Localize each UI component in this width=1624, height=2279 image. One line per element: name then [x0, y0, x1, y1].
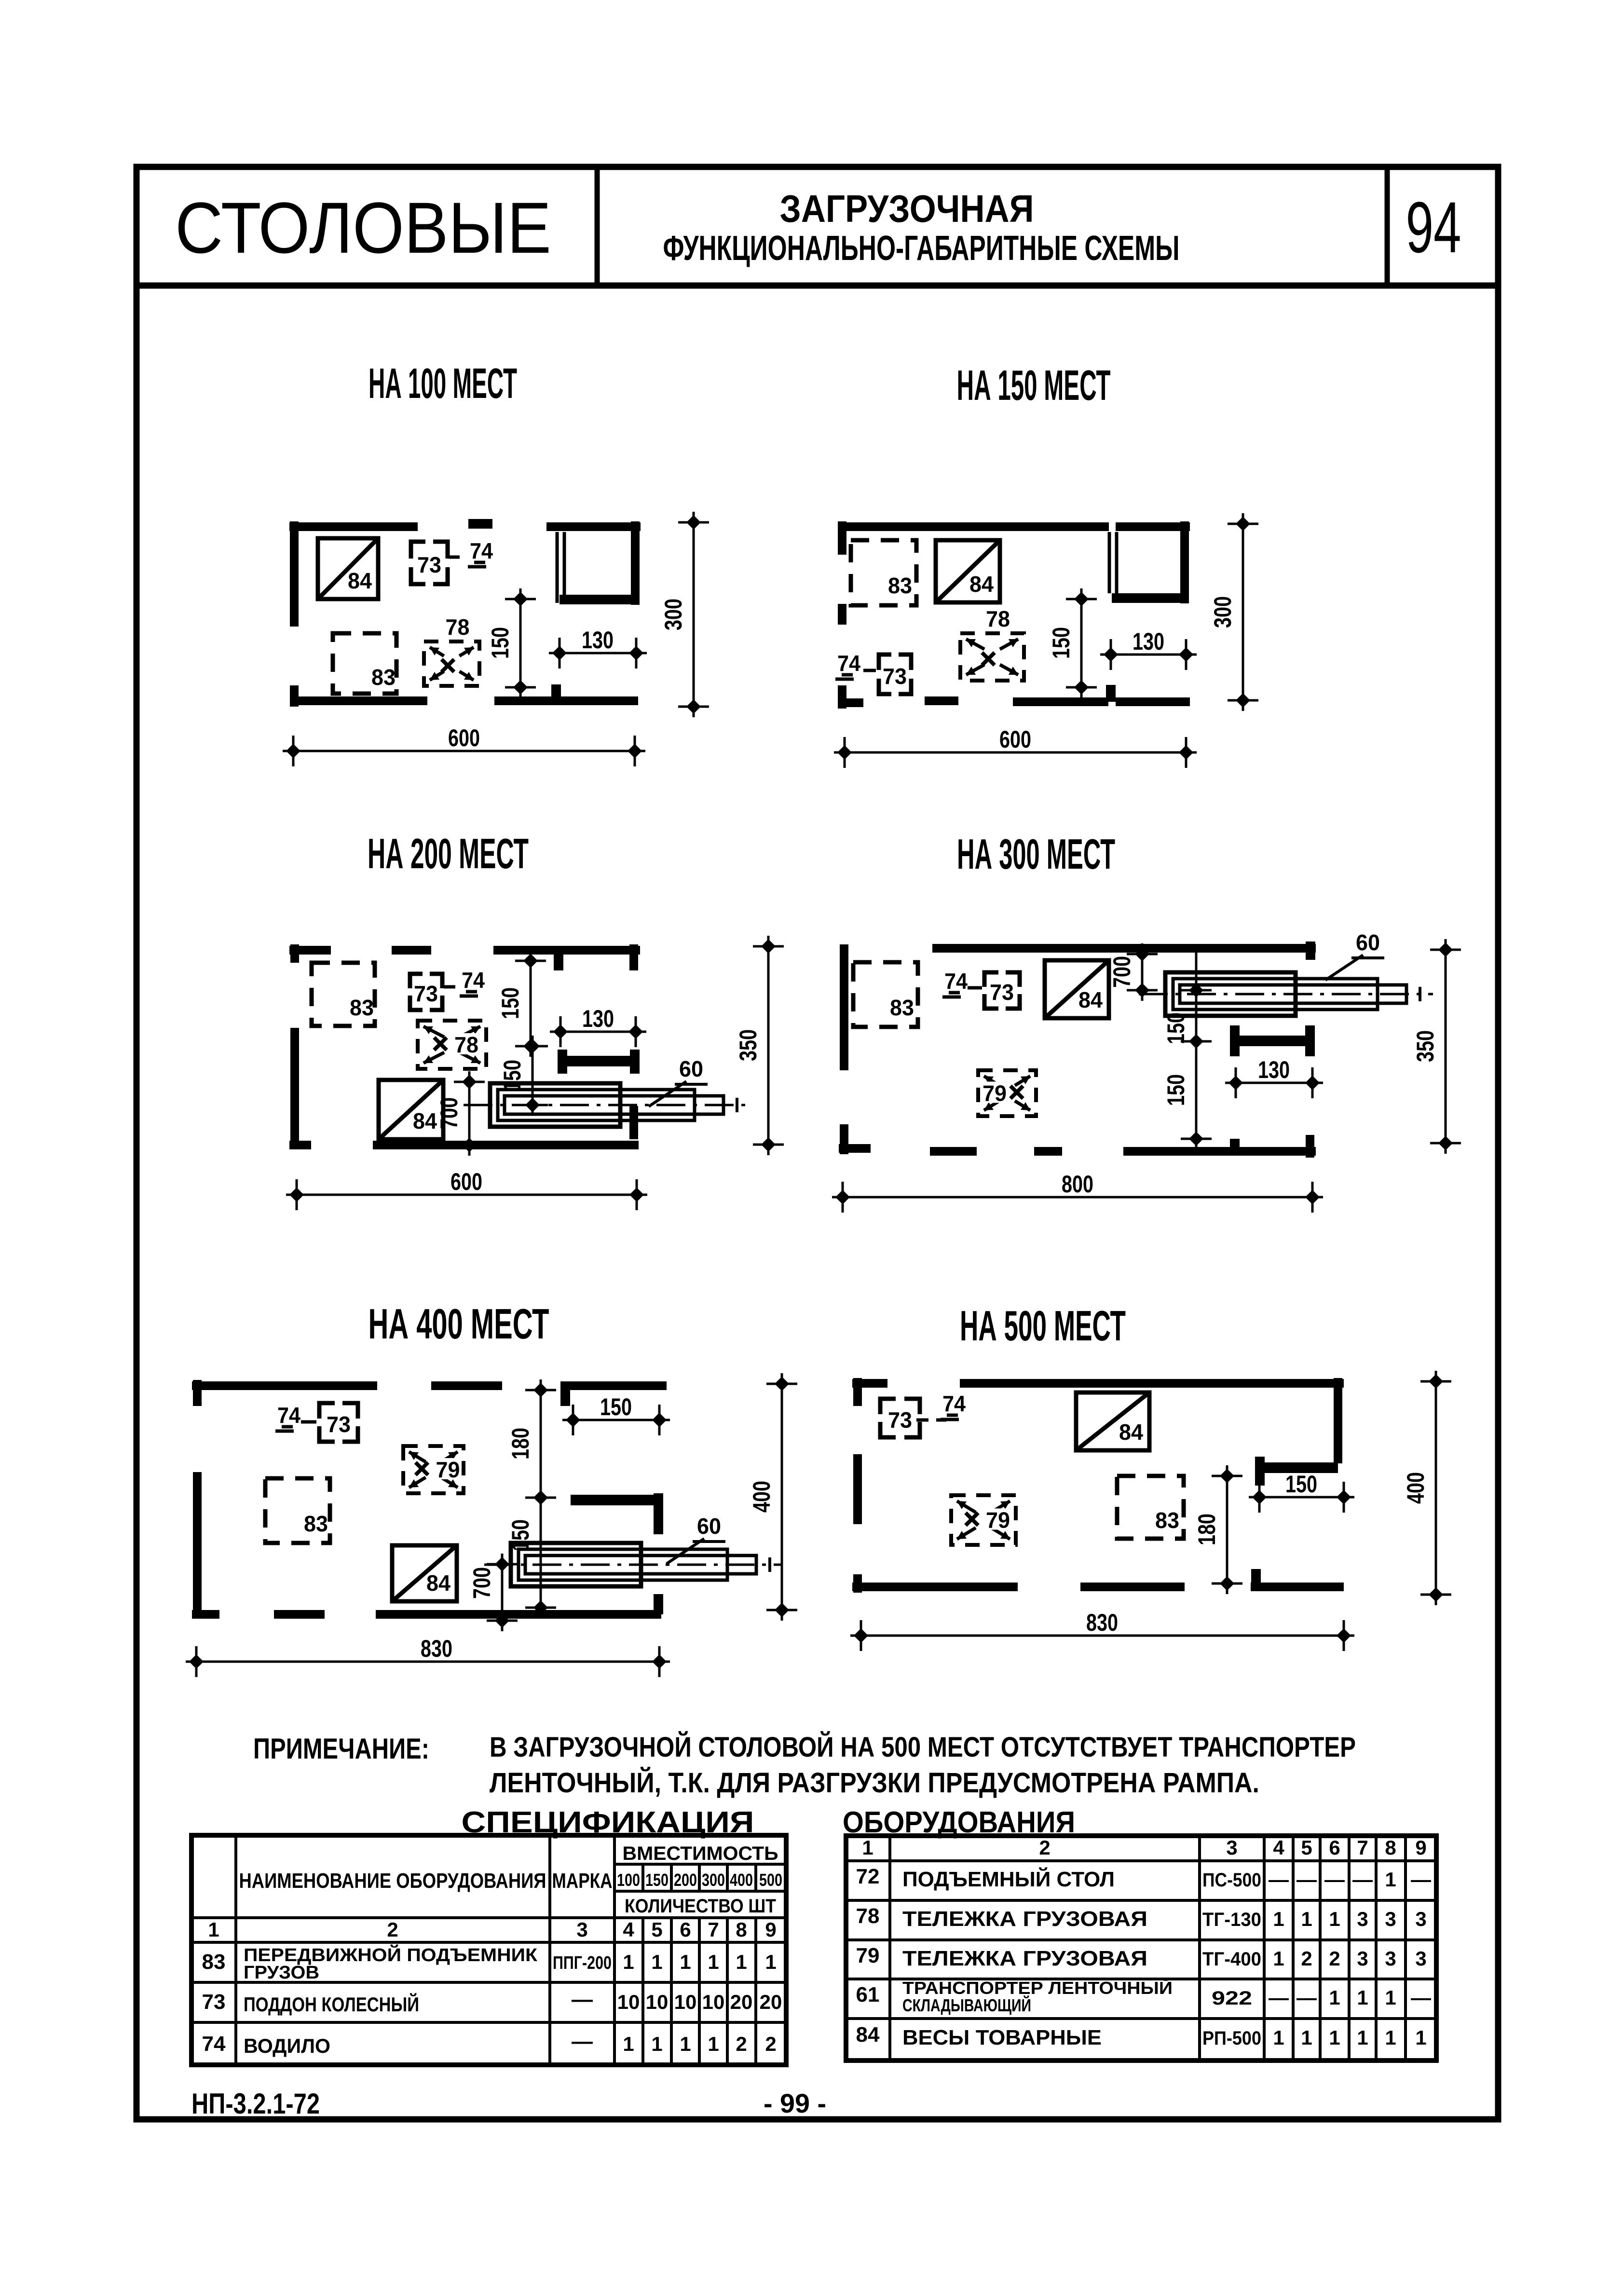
- svg-text:3: 3: [1357, 1908, 1368, 1930]
- svg-text:1: 1: [651, 1951, 662, 1973]
- svg-text:400: 400: [748, 1481, 775, 1513]
- svg-text:1: 1: [708, 1951, 719, 1973]
- svg-text:НАИМЕНОВАНИЕ ОБОРУДОВАНИЯ: НАИМЕНОВАНИЕ ОБОРУДОВАНИЯ: [239, 1869, 546, 1893]
- svg-text:78: 78: [986, 606, 1010, 631]
- svg-text:61: 61: [856, 1983, 880, 2006]
- svg-text:130: 130: [582, 627, 614, 654]
- svg-text:300: 300: [660, 599, 687, 630]
- svg-text:400: 400: [730, 1870, 753, 1890]
- svg-text:ТГ-130: ТГ-130: [1202, 1909, 1261, 1930]
- svg-text:73: 73: [202, 1990, 226, 2014]
- svg-text:1: 1: [1415, 2026, 1426, 2049]
- svg-text:350: 350: [1412, 1030, 1439, 1062]
- svg-text:1: 1: [736, 1951, 747, 1973]
- svg-text:1: 1: [765, 1951, 776, 1973]
- svg-text:84: 84: [1078, 987, 1103, 1012]
- svg-text:ТРАНСПОРТЕР ЛЕНТОЧНЫЙ: ТРАНСПОРТЕР ЛЕНТОЧНЫЙ: [902, 1978, 1173, 1998]
- svg-text:700: 700: [468, 1567, 495, 1599]
- svg-text:1: 1: [1273, 1947, 1284, 1970]
- svg-text:ЗАГРУЗОЧНАЯ: ЗАГРУЗОЧНАЯ: [780, 187, 1034, 230]
- svg-text:130: 130: [1133, 628, 1164, 655]
- svg-text:5: 5: [1301, 1836, 1312, 1859]
- svg-text:73: 73: [414, 981, 438, 1006]
- svg-text:200: 200: [674, 1870, 697, 1890]
- svg-text:83: 83: [890, 995, 914, 1020]
- svg-text:78: 78: [856, 1904, 880, 1928]
- svg-text:1: 1: [1273, 2026, 1284, 2049]
- svg-text:—: —: [1324, 1868, 1345, 1891]
- svg-text:ЛЕНТОЧНЫЙ, Т.К. ДЛЯ РАЗГРУЗК: ЛЕНТОЧНЫЙ, Т.К. ДЛЯ РАЗГРУЗКИ ПРЕДУСМОТР…: [490, 1767, 1259, 1799]
- svg-text:83: 83: [202, 1950, 226, 1974]
- svg-text:83: 83: [888, 573, 912, 598]
- svg-text:2: 2: [1329, 1947, 1340, 1970]
- svg-text:10: 10: [617, 1991, 640, 2013]
- svg-text:1: 1: [1329, 1908, 1340, 1930]
- svg-text:МАРКА: МАРКА: [552, 1869, 613, 1893]
- svg-text:В ЗАГРУЗОЧНОЙ СТОЛОВОЙ НА: В ЗАГРУЗОЧНОЙ СТОЛОВОЙ НА 500 МЕСТ ОТСУТ…: [490, 1732, 1356, 1763]
- svg-text:300: 300: [1209, 596, 1236, 628]
- svg-text:1: 1: [680, 1951, 691, 1973]
- svg-text:ППГ-200: ППГ-200: [553, 1953, 612, 1973]
- svg-text:НА 400 МЕСТ: НА 400 МЕСТ: [368, 1300, 549, 1348]
- svg-text:150: 150: [1285, 1471, 1317, 1498]
- svg-text:—: —: [1269, 1868, 1289, 1891]
- svg-text:—: —: [1411, 1868, 1431, 1891]
- svg-text:150: 150: [507, 1519, 534, 1551]
- svg-text:73: 73: [417, 552, 441, 577]
- svg-text:74: 74: [942, 1391, 966, 1416]
- svg-text:9: 9: [1415, 1836, 1426, 1859]
- svg-text:130: 130: [1258, 1056, 1290, 1083]
- svg-text:74: 74: [277, 1403, 300, 1428]
- svg-text:20: 20: [730, 1991, 753, 2013]
- svg-text:600: 600: [999, 726, 1031, 753]
- svg-text:100: 100: [617, 1870, 640, 1890]
- svg-text:84: 84: [413, 1108, 437, 1133]
- svg-text:1: 1: [1301, 2026, 1312, 2049]
- svg-text:6: 6: [680, 1918, 691, 1941]
- svg-text:73: 73: [883, 664, 907, 689]
- svg-text:150: 150: [487, 627, 514, 659]
- svg-text:3: 3: [576, 1918, 587, 1941]
- svg-text:ВЕСЫ ТОВАРНЫЕ: ВЕСЫ ТОВАРНЫЕ: [902, 2026, 1102, 2049]
- svg-text:350: 350: [735, 1029, 762, 1061]
- svg-text:3: 3: [1385, 1908, 1396, 1930]
- svg-text:3: 3: [1226, 1836, 1237, 1859]
- svg-text:1: 1: [208, 1918, 219, 1941]
- svg-text:2: 2: [765, 2033, 776, 2055]
- svg-text:83: 83: [350, 995, 374, 1020]
- svg-text:10: 10: [646, 1991, 669, 2013]
- svg-text:- 99 -: - 99 -: [764, 2088, 826, 2118]
- svg-text:79: 79: [436, 1457, 460, 1482]
- svg-text:—: —: [572, 1988, 593, 2011]
- svg-text:1: 1: [1273, 1908, 1284, 1930]
- svg-text:ПОДДОН КОЛЕСНЫЙ: ПОДДОН КОЛЕСНЫЙ: [244, 1992, 419, 2016]
- svg-text:СКЛАДЫВАЮЩИЙ: СКЛАДЫВАЮЩИЙ: [902, 1995, 1031, 2015]
- svg-text:НА 500 МЕСТ: НА 500 МЕСТ: [960, 1302, 1126, 1350]
- svg-text:1: 1: [1329, 2026, 1340, 2049]
- svg-text:74: 74: [470, 538, 493, 563]
- svg-text:ТЕЛЕЖКА ГРУЗОВАЯ: ТЕЛЕЖКА ГРУЗОВАЯ: [902, 1907, 1147, 1931]
- svg-text:СТОЛОВЫЕ: СТОЛОВЫЕ: [175, 187, 551, 268]
- svg-text:2: 2: [1039, 1836, 1050, 1859]
- svg-text:НА 100 МЕСТ: НА 100 МЕСТ: [368, 359, 517, 407]
- svg-text:10: 10: [702, 1991, 725, 2013]
- svg-text:—: —: [1411, 1986, 1431, 2009]
- svg-text:83: 83: [304, 1511, 328, 1536]
- svg-text:НА 150 МЕСТ: НА 150 МЕСТ: [957, 361, 1111, 409]
- svg-text:73: 73: [888, 1407, 912, 1433]
- svg-text:60: 60: [1356, 930, 1380, 955]
- svg-text:150: 150: [1162, 1074, 1189, 1106]
- svg-text:9: 9: [765, 1918, 776, 1941]
- svg-text:1: 1: [623, 2033, 634, 2055]
- svg-text:ВМЕСТИМОСТЬ: ВМЕСТИМОСТЬ: [623, 1843, 778, 1864]
- svg-text:79: 79: [856, 1944, 880, 1967]
- svg-text:—: —: [1269, 1986, 1289, 2009]
- svg-text:НА 200 МЕСТ: НА 200 МЕСТ: [368, 830, 529, 877]
- svg-text:72: 72: [856, 1865, 880, 1888]
- svg-text:500: 500: [759, 1870, 782, 1890]
- svg-text:РП-500: РП-500: [1202, 2028, 1261, 2049]
- svg-text:1: 1: [862, 1836, 873, 1859]
- svg-text:8: 8: [1385, 1836, 1396, 1859]
- svg-text:4: 4: [1273, 1836, 1284, 1859]
- svg-text:830: 830: [421, 1635, 452, 1662]
- svg-text:79: 79: [983, 1081, 1007, 1106]
- svg-text:—: —: [1352, 1868, 1373, 1891]
- svg-text:2: 2: [1301, 1947, 1312, 1970]
- svg-text:1: 1: [708, 2033, 719, 2055]
- svg-text:150: 150: [600, 1393, 632, 1420]
- svg-text:2: 2: [387, 1918, 398, 1941]
- svg-text:150: 150: [645, 1870, 669, 1890]
- svg-text:1: 1: [680, 2033, 691, 2055]
- svg-text:800: 800: [1062, 1171, 1093, 1198]
- svg-text:150: 150: [1162, 1012, 1189, 1044]
- svg-text:130: 130: [582, 1005, 614, 1032]
- svg-text:7: 7: [708, 1918, 719, 1941]
- svg-text:150: 150: [499, 1060, 526, 1092]
- svg-text:НП-3.2.1-72: НП-3.2.1-72: [191, 2088, 320, 2120]
- svg-text:ФУНКЦИОНАЛЬНО-ГАБАРИТНЫЕ СХЕМЫ: ФУНКЦИОНАЛЬНО-ГАБАРИТНЫЕ СХЕМЫ: [663, 229, 1180, 268]
- svg-text:74: 74: [944, 969, 968, 994]
- svg-text:1: 1: [623, 1951, 634, 1973]
- svg-text:1: 1: [1385, 1868, 1396, 1891]
- svg-text:ПОДЪЕМНЫЙ СТОЛ: ПОДЪЕМНЫЙ СТОЛ: [902, 1867, 1115, 1891]
- svg-text:84: 84: [426, 1570, 450, 1596]
- svg-text:79: 79: [986, 1508, 1010, 1533]
- svg-text:1: 1: [1385, 2026, 1396, 2049]
- svg-text:84: 84: [856, 2023, 880, 2047]
- svg-text:84: 84: [1119, 1419, 1143, 1445]
- svg-text:1: 1: [1301, 1908, 1312, 1930]
- svg-text:3: 3: [1357, 1947, 1368, 1970]
- svg-text:83: 83: [371, 665, 396, 690]
- svg-text:8: 8: [736, 1918, 747, 1941]
- svg-text:922: 922: [1212, 1988, 1252, 2009]
- svg-text:73: 73: [990, 980, 1014, 1005]
- svg-text:84: 84: [969, 572, 994, 597]
- svg-text:94: 94: [1406, 187, 1461, 268]
- svg-text:—: —: [572, 2030, 593, 2053]
- svg-text:НА 300 МЕСТ: НА 300 МЕСТ: [957, 830, 1115, 878]
- svg-text:400: 400: [1402, 1472, 1429, 1504]
- svg-text:78: 78: [446, 614, 470, 640]
- svg-text:1: 1: [1357, 2026, 1368, 2049]
- svg-text:78: 78: [454, 1032, 478, 1057]
- svg-text:ПРИМЕЧАНИЕ:: ПРИМЕЧАНИЕ:: [253, 1733, 429, 1765]
- svg-text:ТЕЛЕЖКА ГРУЗОВАЯ: ТЕЛЕЖКА ГРУЗОВАЯ: [902, 1947, 1147, 1970]
- svg-text:3: 3: [1415, 1908, 1426, 1930]
- svg-text:4: 4: [623, 1918, 634, 1941]
- svg-text:600: 600: [450, 1168, 482, 1195]
- svg-text:20: 20: [760, 1991, 782, 2013]
- svg-text:ГРУЗОВ: ГРУЗОВ: [244, 1963, 319, 1983]
- svg-text:ТГ-400: ТГ-400: [1202, 1949, 1261, 1970]
- svg-text:ПС-500: ПС-500: [1202, 1870, 1261, 1891]
- svg-text:83: 83: [1155, 1508, 1179, 1533]
- svg-text:150: 150: [497, 987, 524, 1019]
- svg-text:10: 10: [674, 1991, 697, 2013]
- svg-text:1: 1: [651, 2033, 662, 2055]
- svg-text:74: 74: [202, 2032, 226, 2056]
- svg-text:1: 1: [1357, 1986, 1368, 2009]
- svg-text:73: 73: [327, 1412, 351, 1437]
- svg-text:КОЛИЧЕСТВО ШТ: КОЛИЧЕСТВО ШТ: [625, 1896, 776, 1917]
- svg-text:7: 7: [1357, 1836, 1368, 1859]
- svg-text:3: 3: [1415, 1947, 1426, 1970]
- svg-text:2: 2: [736, 2033, 747, 2055]
- svg-text:6: 6: [1329, 1836, 1340, 1859]
- svg-text:84: 84: [348, 568, 372, 593]
- svg-text:—: —: [1296, 1986, 1317, 2009]
- svg-text:830: 830: [1086, 1609, 1118, 1636]
- svg-text:1: 1: [1385, 1986, 1396, 2009]
- svg-text:60: 60: [697, 1514, 721, 1539]
- svg-text:300: 300: [702, 1870, 725, 1890]
- svg-text:ВОДИЛО: ВОДИЛО: [244, 2034, 330, 2057]
- svg-text:700: 700: [1108, 956, 1135, 988]
- svg-text:74: 74: [837, 651, 860, 676]
- svg-text:180: 180: [1193, 1514, 1220, 1545]
- svg-text:1: 1: [1329, 1986, 1340, 2009]
- svg-text:180: 180: [507, 1428, 534, 1460]
- svg-text:74: 74: [462, 968, 485, 993]
- svg-text:3: 3: [1385, 1947, 1396, 1970]
- svg-text:700: 700: [436, 1097, 463, 1129]
- svg-text:600: 600: [448, 724, 480, 751]
- svg-text:5: 5: [651, 1918, 662, 1941]
- svg-text:60: 60: [679, 1056, 703, 1081]
- svg-text:150: 150: [1048, 627, 1075, 659]
- svg-text:—: —: [1296, 1868, 1317, 1891]
